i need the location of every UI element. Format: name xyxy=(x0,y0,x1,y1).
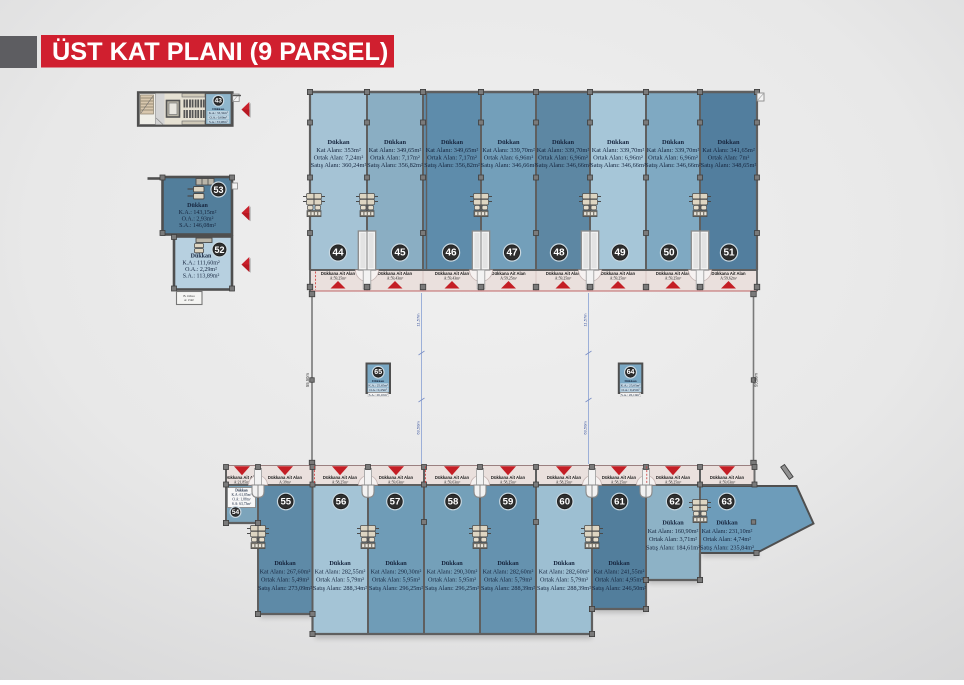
svg-text:K.A.: 143,15m²: K.A.: 143,15m² xyxy=(179,210,217,216)
svg-text:Ortak Alan: 5,79m²: Ortak Alan: 5,79m² xyxy=(484,577,532,584)
svg-text:Kat Alanı: 267,60m²: Kat Alanı: 267,60m² xyxy=(260,568,311,575)
svg-text:55,50m: 55,50m xyxy=(305,373,310,387)
svg-text:Kat Alanı: 339,70m²: Kat Alanı: 339,70m² xyxy=(537,147,590,154)
svg-text:Dükkana Ait Alan: Dükkana Ait Alan xyxy=(602,475,637,480)
svg-text:Satış Alanı: 296,25m²: Satış Alanı: 296,25m² xyxy=(425,585,479,592)
svg-text:Ortak Alan: 7,17m²: Ortak Alan: 7,17m² xyxy=(370,155,420,162)
svg-text:61: 61 xyxy=(614,496,625,507)
svg-text:Ortak Alan: 7,17m²: Ortak Alan: 7,17m² xyxy=(427,155,477,162)
svg-text:Dükkan: Dükkan xyxy=(327,139,349,146)
svg-text:Dükkan: Dükkan xyxy=(191,254,212,260)
svg-text:Dükkan: Dükkan xyxy=(274,560,296,567)
svg-text:Satış Alanı: 273,09m²: Satış Alanı: 273,09m² xyxy=(258,585,312,592)
svg-text:59: 59 xyxy=(503,496,514,507)
svg-text:Dükkan: Dükkan xyxy=(187,203,208,209)
svg-text:Satış Alanı: 184,61m²: Satış Alanı: 184,61m² xyxy=(646,544,700,551)
svg-text:Dükkana Ait Alan: Dükkana Ait Alan xyxy=(710,475,745,480)
svg-text:Dükkana Ait Alan: Dükkana Ait Alan xyxy=(656,475,691,480)
svg-text:Dükkan: Dükkan xyxy=(384,139,406,146)
svg-text:Dükkana Ait Alan: Dükkana Ait Alan xyxy=(435,271,470,276)
svg-text:Dükkan: Dükkan xyxy=(717,139,739,146)
svg-text:Kat Alanı: 282,55m²: Kat Alanı: 282,55m² xyxy=(315,568,366,575)
svg-text:46: 46 xyxy=(445,247,457,258)
svg-text:Kat Alanı: 339,70m²: Kat Alanı: 339,70m² xyxy=(482,147,535,154)
svg-text:Ortak Alan: 5,79m²: Ortak Alan: 5,79m² xyxy=(316,577,364,584)
svg-text:Dükkana Ait Alan: Dükkana Ait Alan xyxy=(546,271,581,276)
svg-text:Dükkan: Dükkan xyxy=(497,139,519,146)
svg-text:O.A.: 2,93m²: O.A.: 2,93m² xyxy=(182,216,214,222)
svg-text:ÜST KAT PLANI (9 PARSEL): ÜST KAT PLANI (9 PARSEL) xyxy=(52,37,388,66)
svg-text:Ortak Alan: 5,49m²: Ortak Alan: 5,49m² xyxy=(261,577,309,584)
svg-text:53: 53 xyxy=(213,185,223,195)
svg-text:Satış Alanı: 360,24m²: Satış Alanı: 360,24m² xyxy=(311,162,367,169)
svg-text:A:39m²: A:39m² xyxy=(279,480,292,484)
svg-text:49: 49 xyxy=(614,247,626,258)
svg-text:Satış Alanı: 296,25m²: Satış Alanı: 296,25m² xyxy=(369,585,423,592)
svg-text:Dükkan: Dükkan xyxy=(553,560,575,567)
svg-text:Dükkana Ait Alan: Dükkana Ait Alan xyxy=(601,271,636,276)
svg-text:56: 56 xyxy=(336,496,347,507)
svg-text:Kat Alanı: 290,30m²: Kat Alanı: 290,30m² xyxy=(371,568,422,575)
svg-text:Ortak Alan: 3,71m²: Ortak Alan: 3,71m² xyxy=(649,536,697,543)
svg-text:Dükkan: Dükkan xyxy=(608,560,630,567)
svg-text:Satış Alanı: 356,82m²: Satış Alanı: 356,82m² xyxy=(424,162,480,169)
svg-text:Ortak Alan: 4,95m²: Ortak Alan: 4,95m² xyxy=(595,577,643,584)
svg-text:Kat Alanı: 349,65m²: Kat Alanı: 349,65m² xyxy=(426,147,479,154)
svg-text:Dükkan: Dükkan xyxy=(441,560,463,567)
svg-text:Dükkana Ait Alan: Dükkana Ait Alan xyxy=(435,475,470,480)
svg-text:S.A.: 113,89m²: S.A.: 113,89m² xyxy=(183,274,220,280)
svg-text:Satış Alanı: 346,66m²: Satış Alanı: 346,66m² xyxy=(481,162,537,169)
svg-text:Dükkan: Dükkan xyxy=(624,379,636,383)
svg-text:Kat Alanı: 339,70m²: Kat Alanı: 339,70m² xyxy=(592,147,645,154)
svg-text:Dükkana Ait Alan: Dükkana Ait Alan xyxy=(323,475,358,480)
svg-text:Dükkana Ait Alan: Dükkana Ait Alan xyxy=(321,271,356,276)
svg-text:Dükkana Ait Alan: Dükkana Ait Alan xyxy=(656,271,691,276)
svg-text:Kat Alanı: 339,70m²: Kat Alanı: 339,70m² xyxy=(647,147,700,154)
svg-text:Satış Alanı: 288,39m²: Satış Alanı: 288,39m² xyxy=(537,585,591,592)
svg-text:Dükkan: Dükkan xyxy=(662,520,684,527)
svg-text:A: 15m²: A: 15m² xyxy=(184,298,194,302)
svg-text:Dükkana Ait Alan: Dükkana Ait Alan xyxy=(379,475,414,480)
svg-text:Dükkana Ait Alan: Dükkana Ait Alan xyxy=(491,271,526,276)
svg-text:Dükkana Ait Alan: Dükkana Ait Alan xyxy=(491,475,526,480)
svg-text:Satış Alanı: 356,82m²: Satış Alanı: 356,82m² xyxy=(367,162,423,169)
svg-text:48: 48 xyxy=(553,247,565,258)
svg-text:Dükkan: Dükkan xyxy=(441,139,463,146)
svg-text:Kat Alanı: 241,55m²: Kat Alanı: 241,55m² xyxy=(594,568,645,575)
svg-text:Dükkana Ait Alan: Dükkana Ait Alan xyxy=(711,271,746,276)
svg-text:Kat Alanı: 290,30m²: Kat Alanı: 290,30m² xyxy=(427,568,478,575)
svg-text:54: 54 xyxy=(232,509,240,516)
svg-text:51: 51 xyxy=(723,247,735,258)
svg-text:Satış Alanı: 348,65m²: Satış Alanı: 348,65m² xyxy=(701,162,757,169)
svg-text:Satış Alanı: 235,84m²: Satış Alanı: 235,84m² xyxy=(700,544,754,551)
svg-text:Kat Alanı: 282,60m²: Kat Alanı: 282,60m² xyxy=(539,568,590,575)
svg-text:60: 60 xyxy=(559,496,570,507)
svg-text:Dükkan: Dükkan xyxy=(385,560,407,567)
svg-text:57: 57 xyxy=(390,496,401,507)
svg-text:63,50m: 63,50m xyxy=(582,421,587,435)
svg-text:Dükkan: Dükkan xyxy=(552,139,574,146)
svg-text:Dükkan: Dükkan xyxy=(329,560,351,567)
svg-text:Satış Alanı: 288,34m²: Satış Alanı: 288,34m² xyxy=(313,585,367,592)
svg-text:Dükkan: Dükkan xyxy=(716,520,738,527)
svg-text:Kat Alanı: 353m²: Kat Alanı: 353m² xyxy=(316,147,361,154)
svg-text:Dükkana Ait Alan: Dükkana Ait Alan xyxy=(378,271,413,276)
svg-text:Satış Alanı: 346,66m²: Satış Alanı: 346,66m² xyxy=(590,162,646,169)
svg-text:S.A.: 146,08m²: S.A.: 146,08m² xyxy=(179,223,216,229)
svg-text:64: 64 xyxy=(627,369,635,376)
svg-text:58: 58 xyxy=(448,496,459,507)
svg-text:43: 43 xyxy=(215,98,223,105)
svg-text:Ortak Alan: 5,95m²: Ortak Alan: 5,95m² xyxy=(372,577,420,584)
svg-text:Dükkan: Dükkan xyxy=(497,560,519,567)
svg-text:52: 52 xyxy=(214,245,224,255)
svg-text:11,57m: 11,57m xyxy=(582,313,587,327)
svg-text:Kat Alanı: 341,65m²: Kat Alanı: 341,65m² xyxy=(702,147,755,154)
svg-text:Ortak Alan: 6,96m²: Ortak Alan: 6,96m² xyxy=(538,155,588,162)
svg-text:Ortak Alan: 7m²: Ortak Alan: 7m² xyxy=(708,155,750,162)
svg-text:63,50m: 63,50m xyxy=(415,421,420,435)
svg-text:47: 47 xyxy=(506,247,518,258)
svg-text:45: 45 xyxy=(394,247,406,258)
svg-text:Satış Alanı: 346,66m²: Satış Alanı: 346,66m² xyxy=(535,162,591,169)
svg-text:Kat Alanı: 282,60m²: Kat Alanı: 282,60m² xyxy=(483,568,534,575)
svg-text:Dükkan: Dükkan xyxy=(662,139,684,146)
svg-text:44: 44 xyxy=(332,247,344,258)
svg-text:O.A.: 2,29m²: O.A.: 2,29m² xyxy=(185,267,217,273)
svg-text:Satış Alanı: 288,39m²: Satış Alanı: 288,39m² xyxy=(481,585,535,592)
svg-text:65: 65 xyxy=(374,369,382,376)
svg-text:Ortak Alan: 4,74m²: Ortak Alan: 4,74m² xyxy=(703,536,751,543)
svg-text:50: 50 xyxy=(663,247,675,258)
svg-text:K.A.: 111,60m²: K.A.: 111,60m² xyxy=(182,260,220,266)
svg-text:62: 62 xyxy=(669,496,680,507)
svg-text:Dükkan: Dükkan xyxy=(607,139,629,146)
svg-text:Dükkan: Dükkan xyxy=(235,489,247,493)
svg-text:63: 63 xyxy=(721,496,732,507)
svg-text:Dükkana Ait Alan: Dükkana Ait Alan xyxy=(268,475,303,480)
svg-text:Ortak Alan: 5,95m²: Ortak Alan: 5,95m² xyxy=(428,577,476,584)
svg-text:Kat Alanı: 160,90m²: Kat Alanı: 160,90m² xyxy=(648,528,699,535)
svg-text:Ortak Alan: 6,96m²: Ortak Alan: 6,96m² xyxy=(484,155,534,162)
svg-text:Ortak Alan: 6,96m²: Ortak Alan: 6,96m² xyxy=(648,155,698,162)
svg-text:55,50m: 55,50m xyxy=(754,373,759,387)
svg-text:11,57m: 11,57m xyxy=(415,313,420,327)
svg-text:Satış Alanı: 346,66m²: Satış Alanı: 346,66m² xyxy=(645,162,701,169)
svg-text:55: 55 xyxy=(280,496,291,507)
svg-text:Satış Alanı: 246,50m²: Satış Alanı: 246,50m² xyxy=(592,585,646,592)
svg-text:Dükkan: Dükkan xyxy=(372,379,384,383)
svg-text:Ortak Alan: 6,96m²: Ortak Alan: 6,96m² xyxy=(593,155,643,162)
svg-text:Kat Alanı: 231,10m²: Kat Alanı: 231,10m² xyxy=(702,528,753,535)
svg-text:Kat Alanı: 349,65m²: Kat Alanı: 349,65m² xyxy=(369,147,422,154)
svg-text:Dükkana Ait Alan: Dükkana Ait Alan xyxy=(547,475,582,480)
svg-text:Ortak Alan: 5,79m²: Ortak Alan: 5,79m² xyxy=(540,577,588,584)
svg-text:Ortak Alan: 7,24m²: Ortak Alan: 7,24m² xyxy=(314,155,364,162)
